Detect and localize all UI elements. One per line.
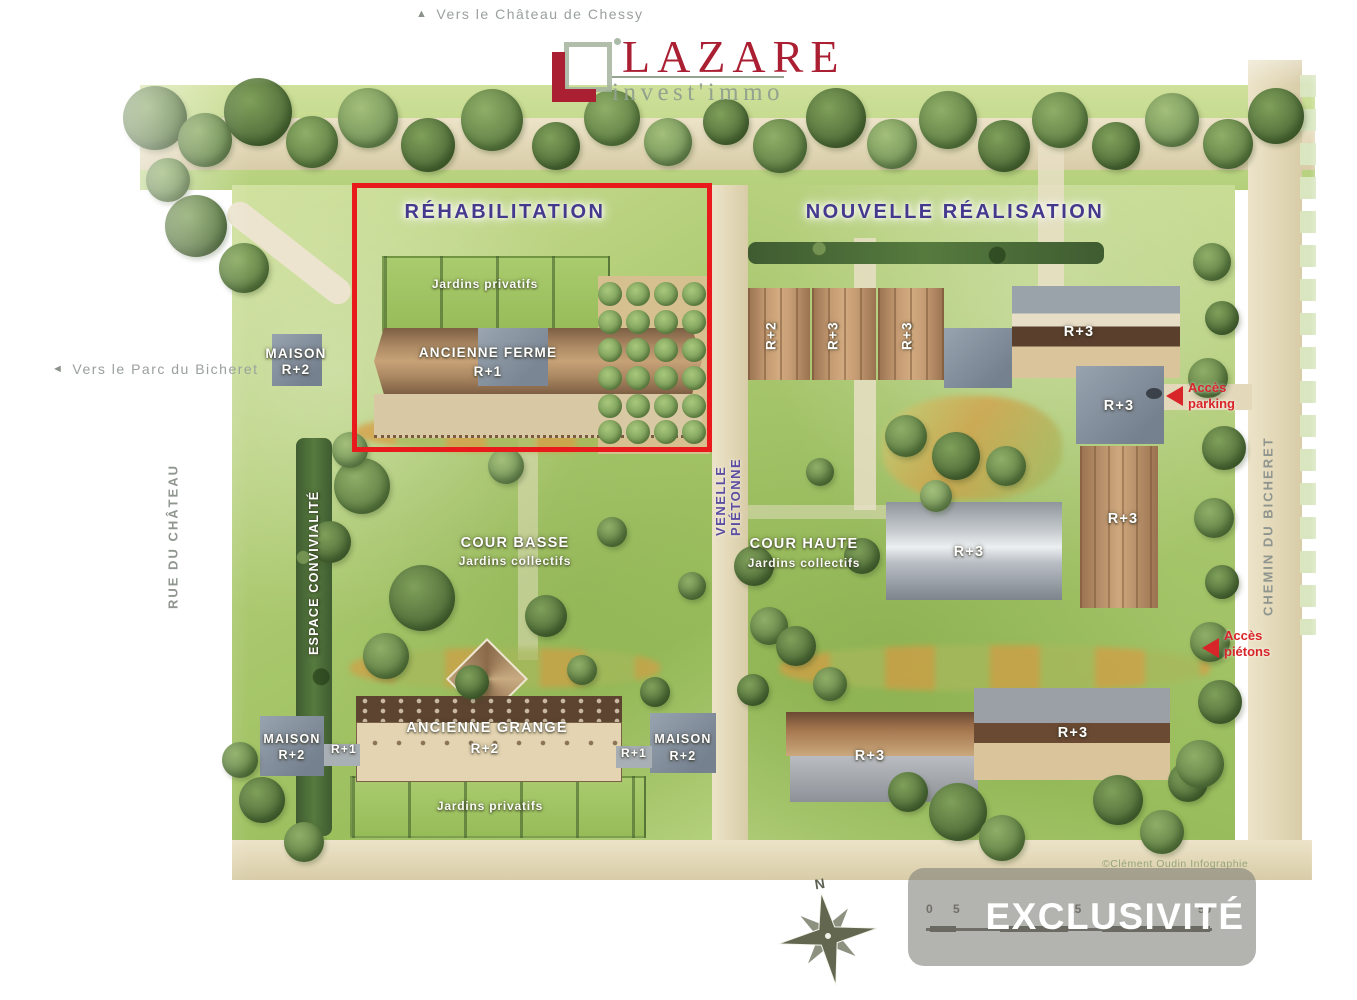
rehabilitation-heading: RÉHABILITATION <box>395 198 615 226</box>
aile-est-level-label: R+1 <box>616 745 652 761</box>
rue-du-chateau-label: RUE DU CHÂTEAU <box>161 464 185 609</box>
collectif-nord-level-label: R+3 <box>1052 323 1106 341</box>
logo-tagline-text: invest'immo <box>612 76 784 107</box>
maison-sud-ouest-level-label: R+2 <box>260 747 324 762</box>
tree-icon <box>165 195 227 257</box>
acces-parking-arrow-icon <box>1166 386 1183 406</box>
meadow-patch-south-east <box>780 645 1210 691</box>
acces-pietons-line2: piétons <box>1224 644 1270 660</box>
site-plan-canvas: RÉHABILITATION NOUVELLE RÉALISATION Jard… <box>0 0 1357 1000</box>
collectif-est-level-label: R+3 <box>1096 510 1150 528</box>
cour-haute-label: COUR HAUTE <box>748 535 860 552</box>
logo-dot-icon <box>614 38 621 45</box>
east-zone-north-hedge <box>748 242 1104 264</box>
maison-sud-ouest-label: MAISON <box>260 731 324 746</box>
direction-west: ◄ Vers le Parc du Bicheret <box>52 361 259 377</box>
aile-ouest-level-label: R+1 <box>326 741 362 757</box>
cour-haute-path <box>748 505 888 519</box>
north-road <box>140 118 1315 170</box>
cour-basse-sub-label: Jardins collectifs <box>450 553 580 568</box>
espace-convivialite-label: ESPACE CONVIVIALITÉ <box>301 468 327 678</box>
exclusivite-badge: EXCLUSIVITÉ <box>908 868 1256 966</box>
compass-rose: N <box>757 865 899 1000</box>
car-icon <box>1146 388 1162 399</box>
nouvelle-realisation-heading: NOUVELLE RÉALISATION <box>815 198 1095 226</box>
venelle-pietonne-label: VENELLE PIÉTONNE <box>716 386 740 536</box>
acces-parking-line1: Accès <box>1188 380 1235 396</box>
rowhouse-1-level-label: R+2 <box>758 310 784 362</box>
ancienne-ferme-label: ANCIENNE FERME <box>408 344 568 361</box>
chemin-sidewalk-dashes <box>1300 75 1316 635</box>
acces-pietons-arrow-icon <box>1202 638 1219 658</box>
ancienne-grange-label: ANCIENNE GRANGE <box>398 719 576 736</box>
fade-right <box>1310 0 1357 1000</box>
compass-north-label: N <box>813 875 826 892</box>
meadow-patch-east-garden <box>882 396 1062 500</box>
collectif-carre-level-label: R+3 <box>1092 397 1146 415</box>
maison-nord-level-label: R+2 <box>264 361 328 377</box>
maison-sud-est-label: MAISON <box>650 731 716 746</box>
acces-pietons-label: Accès piétons <box>1224 628 1270 660</box>
plaza-gray-block <box>944 328 1012 388</box>
logo-square-icon <box>564 42 612 92</box>
exclusivite-badge-label: EXCLUSIVITÉ <box>985 896 1244 938</box>
logo-red-bar-horizontal <box>552 89 596 102</box>
chemin-du-bicheret-label: CHEMIN DU BICHERET <box>1256 418 1280 616</box>
rowhouse-2-level-label: R+3 <box>820 310 846 362</box>
cour-basse-label: COUR BASSE <box>450 534 580 551</box>
acces-parking-line2: parking <box>1188 396 1235 412</box>
acces-parking-label: Accès parking <box>1188 380 1235 412</box>
ancienne-grange-level-label: R+2 <box>455 740 515 756</box>
maison-sud-ouest-building <box>260 716 324 776</box>
north-arrow-icon: ▲ <box>416 8 428 20</box>
direction-north: ▲ Vers le Château de Chessy <box>416 6 644 22</box>
collectif-centre-level-label: R+3 <box>942 543 996 561</box>
direction-north-text: Vers le Château de Chessy <box>436 6 643 22</box>
cour-haute-sub-label: Jardins collectifs <box>748 555 860 570</box>
jardins-privatifs-sud-label: Jardins privatifs <box>430 798 550 814</box>
jardins-privatifs-nord-label: Jardins privatifs <box>420 276 550 292</box>
ancienne-ferme-level-label: R+1 <box>458 363 518 379</box>
rowhouse-3-level-label: R+3 <box>894 310 920 362</box>
collectif-sud-ouest-level-label: R+3 <box>843 747 897 765</box>
west-arrow-icon: ◄ <box>52 363 64 375</box>
acces-pietons-line1: Accès <box>1224 628 1270 644</box>
maison-sud-est-level-label: R+2 <box>650 748 716 763</box>
direction-west-text: Vers le Parc du Bicheret <box>72 361 258 377</box>
maison-nord-label: MAISON <box>264 345 328 361</box>
collectif-sud-est-level-label: R+3 <box>1046 724 1100 742</box>
